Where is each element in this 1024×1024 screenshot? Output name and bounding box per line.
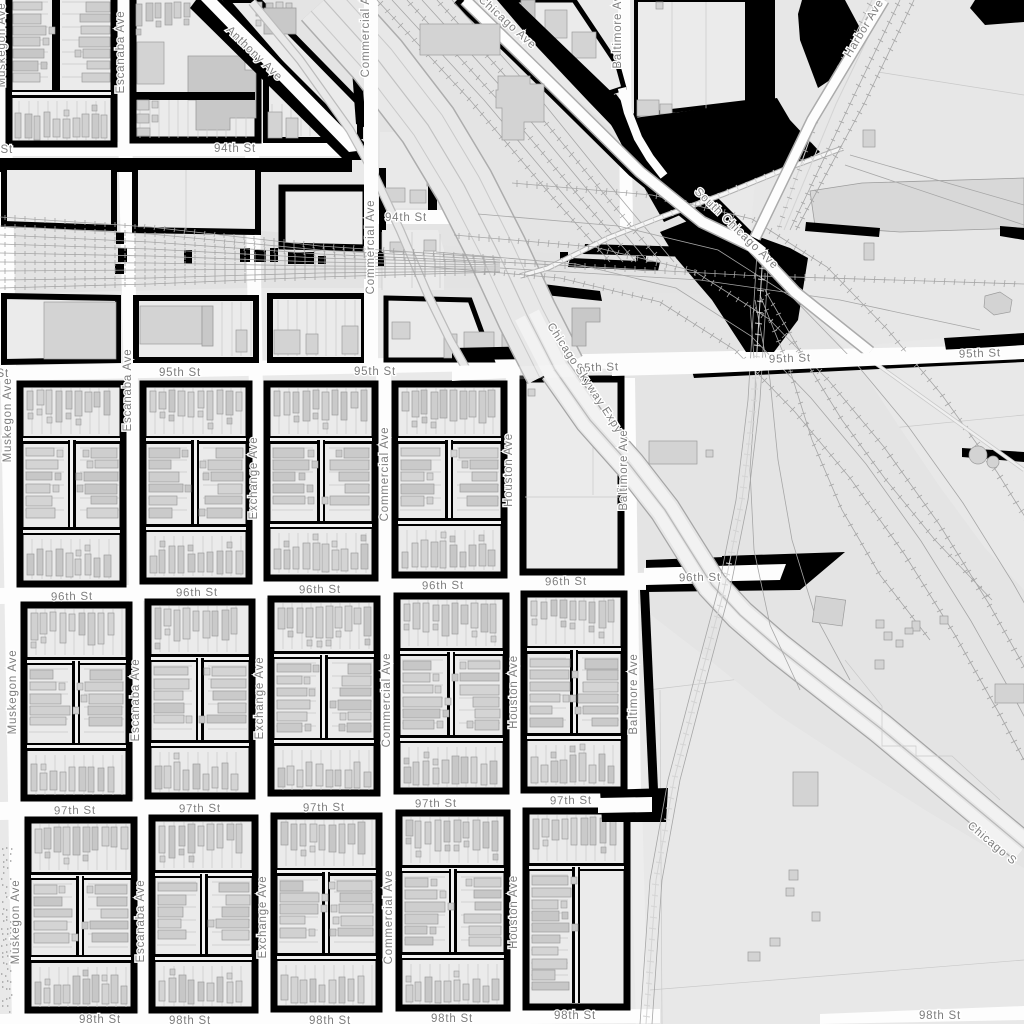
svg-text:96th St: 96th St: [422, 580, 464, 593]
svg-text:95th St: 95th St: [159, 367, 201, 379]
svg-text:96th St: 96th St: [545, 576, 587, 589]
svg-text:97th St: 97th St: [179, 803, 221, 816]
svg-text:98th St: 98th St: [309, 1015, 351, 1024]
svg-text:Escanaba Ave: Escanaba Ave: [122, 349, 134, 432]
svg-text:96th St: 96th St: [679, 572, 721, 585]
svg-text:Commercial Ave: Commercial Ave: [381, 653, 393, 748]
svg-text:Commercial Ave: Commercial Ave: [379, 427, 391, 522]
svg-text:Commercial Ave: Commercial Ave: [383, 870, 395, 965]
svg-text:Escanaba Ave: Escanaba Ave: [130, 659, 142, 742]
svg-text:Muskegon Ave: Muskegon Ave: [0, 3, 8, 88]
svg-text:Houston Ave: Houston Ave: [503, 433, 515, 507]
svg-text:Exchange Ave: Exchange Ave: [254, 657, 266, 740]
svg-text:95th St: 95th St: [959, 347, 1001, 360]
svg-text:94th St: 94th St: [385, 212, 427, 224]
svg-text:Baltimore Ave: Baltimore Ave: [628, 653, 640, 734]
svg-text:95th St: 95th St: [769, 352, 811, 365]
svg-text:98th St: 98th St: [79, 1014, 121, 1024]
svg-text:98th St: 98th St: [169, 1015, 211, 1024]
svg-text:Muskegon Ave: Muskegon Ave: [2, 378, 14, 463]
svg-text:Commercial Ave: Commercial Ave: [360, 0, 372, 77]
svg-text:Escanaba Ave: Escanaba Ave: [135, 880, 147, 963]
svg-text:97th St: 97th St: [550, 795, 592, 808]
svg-text:98th St: 98th St: [919, 1010, 961, 1022]
svg-text:Escanaba Ave: Escanaba Ave: [115, 11, 127, 94]
svg-text:96th St: 96th St: [299, 584, 341, 597]
svg-text:97th St: 97th St: [303, 802, 345, 815]
svg-text:98th St: 98th St: [554, 1010, 596, 1022]
svg-text:96th St: 96th St: [176, 587, 218, 600]
svg-text:97th St: 97th St: [54, 805, 96, 818]
svg-text:97th St: 97th St: [415, 798, 457, 811]
svg-text:Exchange Ave: Exchange Ave: [257, 876, 269, 959]
svg-text:Muskegon Ave: Muskegon Ave: [7, 650, 19, 735]
svg-text:Houston Ave: Houston Ave: [508, 875, 520, 949]
svg-text:Exchange Ave: Exchange Ave: [248, 437, 260, 520]
svg-text:98th St: 98th St: [431, 1013, 473, 1024]
svg-text:Muskegon Ave: Muskegon Ave: [10, 880, 22, 965]
svg-text:Baltimore Ave: Baltimore Ave: [612, 0, 624, 69]
svg-text:Commercial Ave: Commercial Ave: [365, 200, 377, 295]
svg-text:96th St: 96th St: [51, 591, 93, 604]
svg-text:94th St: 94th St: [0, 144, 13, 156]
svg-text:95th St: 95th St: [354, 366, 396, 378]
svg-text:94th St: 94th St: [214, 143, 256, 155]
svg-text:Houston Ave: Houston Ave: [508, 655, 520, 729]
svg-text:Baltimore Ave: Baltimore Ave: [618, 429, 630, 510]
